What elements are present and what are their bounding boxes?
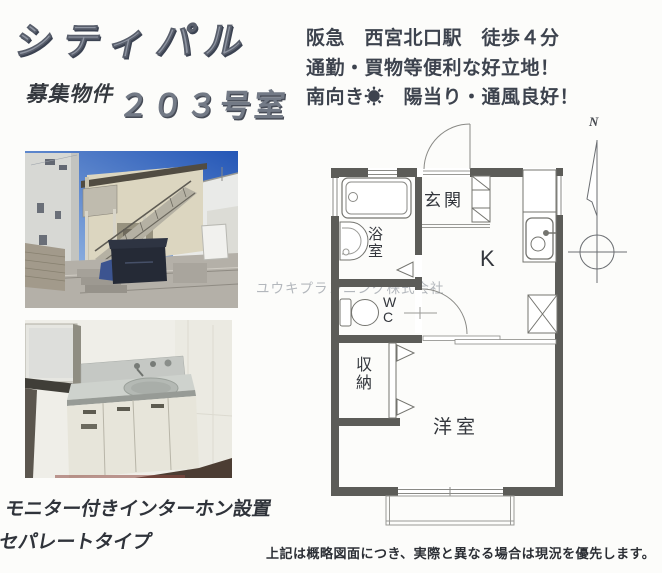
room-label-western-room: 洋室 — [433, 412, 479, 439]
sliding-partition — [423, 336, 556, 344]
highlight-station: 阪急 西宮北口駅 徒歩４分 — [306, 24, 658, 54]
property-title: シティパル — [10, 10, 259, 65]
entrance-door-swing — [424, 124, 470, 169]
kitchen-photo — [25, 320, 232, 478]
recruit-label: 募集物件 — [24, 78, 118, 108]
room-number: ２０３号室 — [116, 80, 291, 125]
disclaimer-note: 上記は概略図面につき、実際と異なる場合は現況を優先します。 — [266, 543, 655, 562]
photo-edge-artifact — [55, 475, 185, 478]
bath-door-mark — [397, 262, 413, 277]
room-label-genkan: 玄関 — [424, 186, 464, 211]
feature-separate: セパレートタイプ — [0, 526, 268, 559]
feature-intercom: モニター付きインターホン設置 — [2, 493, 274, 526]
toilet — [340, 299, 379, 326]
highlight-location: 通勤・買物等便利な好立地！ — [306, 54, 658, 84]
wc-door-opening — [415, 290, 422, 333]
wc-door-swing — [404, 289, 467, 334]
kitchen-counter — [523, 170, 556, 262]
room-label-wc: W C — [383, 295, 396, 325]
exterior-photo — [25, 151, 238, 308]
room-label-storage: 収納 — [349, 356, 373, 392]
highlight-sunlight: 南向き☀ 陽当り・通風良好！ — [306, 83, 658, 113]
trash-box — [108, 238, 168, 284]
floorplan — [300, 110, 662, 560]
refrigerator-space — [528, 295, 557, 333]
shoe-cabinet — [472, 176, 490, 222]
bathtub — [342, 178, 411, 218]
white-panel — [202, 224, 228, 260]
room-label-bath: 浴室 — [364, 226, 385, 260]
closet-doors — [389, 343, 414, 418]
room-label-kitchen: K — [480, 246, 495, 272]
highlights-block: 阪急 西宮北口駅 徒歩４分 通勤・買物等便利な好立地！ 南向き☀ 陽当り・通風良… — [306, 24, 658, 113]
balcony — [386, 496, 514, 525]
north-compass — [568, 140, 627, 283]
compass-north-label: N — [589, 114, 598, 130]
north-arrow — [587, 141, 597, 216]
feature-block: モニター付きインターホン設置 セパレートタイプ — [0, 493, 274, 559]
cabinet — [67, 396, 199, 478]
genkan-step — [422, 225, 490, 228]
bath-door-opening — [415, 255, 422, 277]
